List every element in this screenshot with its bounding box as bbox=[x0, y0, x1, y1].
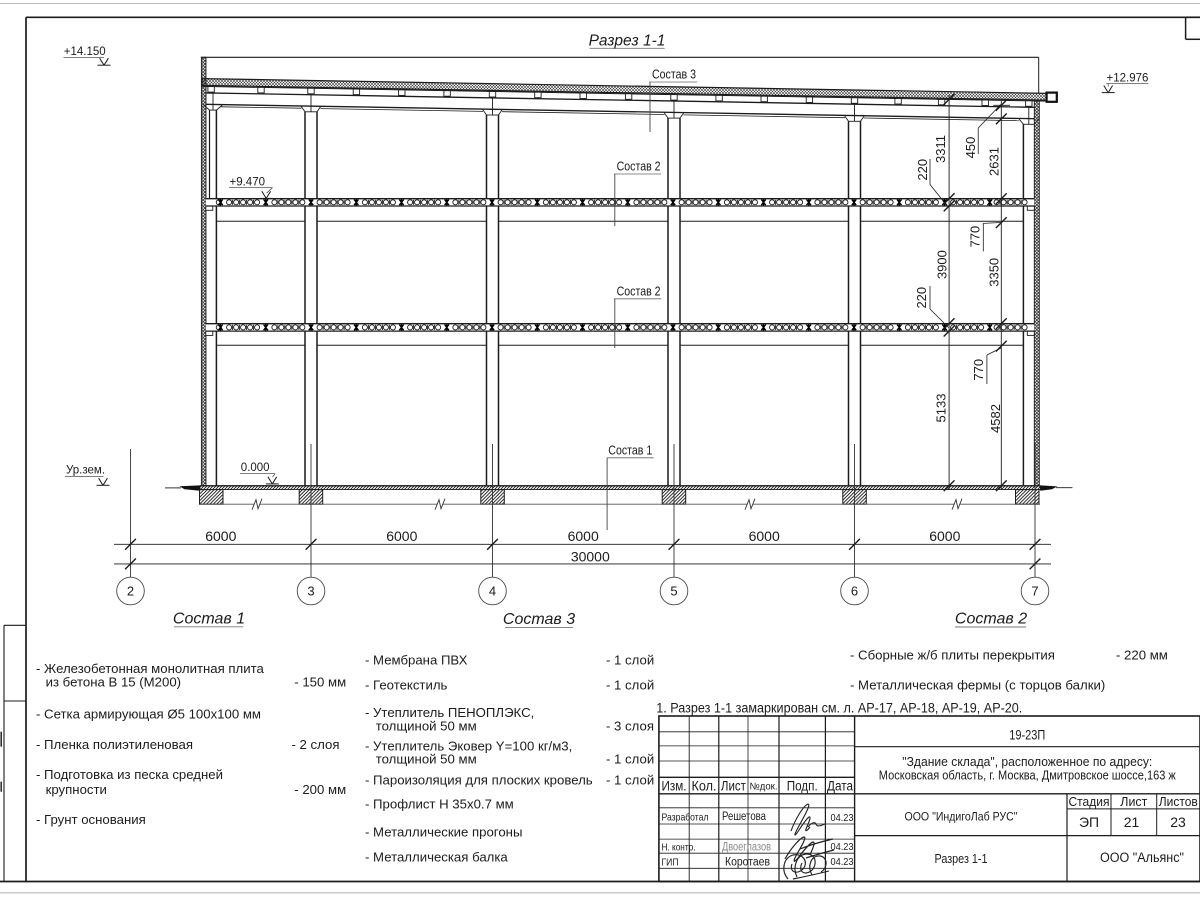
svg-text:6000: 6000 bbox=[568, 528, 599, 544]
svg-text:- Профлист Н 35х0.7 мм: - Профлист Н 35х0.7 мм bbox=[365, 797, 514, 812]
svg-text:4: 4 bbox=[489, 584, 496, 599]
svg-text:- Металлическая фермы (с торцо: - Металлическая фермы (с торцов балки) bbox=[850, 678, 1105, 693]
svg-text:Изм.: Изм. bbox=[662, 779, 687, 794]
svg-text:Состав 3: Состав 3 bbox=[652, 67, 696, 81]
svg-text:толщиной 50 мм: толщиной 50 мм bbox=[376, 752, 477, 767]
svg-text:Состав 2: Состав 2 bbox=[955, 610, 1027, 627]
svg-text:30000: 30000 bbox=[571, 548, 610, 564]
svg-text:Коротаев: Коротаев bbox=[725, 856, 770, 868]
svg-text:Стадия: Стадия bbox=[1069, 794, 1110, 809]
svg-text:19-23П: 19-23П bbox=[1009, 727, 1045, 742]
svg-text:Состав 3: Состав 3 bbox=[503, 611, 575, 628]
svg-text:крупности: крупности bbox=[46, 782, 107, 797]
svg-text:770: 770 bbox=[971, 359, 986, 381]
svg-text:5133: 5133 bbox=[933, 394, 948, 423]
svg-text:- 150 мм: - 150 мм bbox=[294, 675, 346, 690]
svg-text:+9.470: +9.470 bbox=[230, 176, 266, 188]
svg-text:3900: 3900 bbox=[934, 250, 949, 279]
svg-text:ГИП: ГИП bbox=[662, 856, 679, 868]
svg-text:450: 450 bbox=[963, 137, 978, 159]
svg-text:ООО "Альянс": ООО "Альянс" bbox=[1100, 850, 1184, 865]
svg-text:6000: 6000 bbox=[929, 528, 960, 544]
svg-text:Разрез 1-1: Разрез 1-1 bbox=[589, 33, 666, 50]
svg-text:3: 3 bbox=[307, 584, 314, 599]
svg-text:- 1 слой: - 1 слой bbox=[606, 677, 654, 692]
svg-text:6000: 6000 bbox=[386, 528, 417, 544]
svg-text:6000: 6000 bbox=[205, 528, 236, 544]
svg-text:- Геотекстиль: - Геотекстиль bbox=[365, 677, 448, 692]
svg-text:ООО "ИндигоЛаб РУС": ООО "ИндигоЛаб РУС" bbox=[905, 810, 1018, 824]
svg-text:Разрез 1-1: Разрез 1-1 bbox=[935, 852, 988, 866]
svg-text:7: 7 bbox=[1031, 584, 1038, 599]
svg-text:2631: 2631 bbox=[987, 147, 1002, 176]
svg-text:04.23: 04.23 bbox=[831, 841, 854, 853]
svg-text:4582: 4582 bbox=[988, 404, 1003, 433]
svg-text:- 2 слоя: - 2 слоя bbox=[292, 737, 340, 752]
svg-text:толщиной 50 мм: толщиной 50 мм bbox=[376, 719, 477, 734]
svg-text:Н. контр.: Н. контр. bbox=[662, 842, 696, 854]
svg-text:Разработал: Разработал bbox=[662, 812, 709, 824]
svg-text:- Сетка армирующая Ø5 100x100: - Сетка армирующая Ø5 100x100 мм bbox=[36, 707, 261, 722]
svg-text:- Сборные ж/б плиты перекрытия: - Сборные ж/б плиты перекрытия bbox=[850, 647, 1055, 662]
svg-text:770: 770 bbox=[967, 226, 982, 248]
svg-text:Дата: Дата bbox=[827, 779, 853, 794]
svg-text:Лист: Лист bbox=[1120, 794, 1147, 809]
svg-text:Листов: Листов bbox=[1159, 794, 1198, 809]
svg-text:Лист: Лист bbox=[721, 779, 746, 794]
svg-text:"Здание склада", расположенное: "Здание склада", расположенное по адресу… bbox=[902, 755, 1152, 769]
svg-text:- 3 слоя: - 3 слоя bbox=[606, 719, 654, 734]
svg-text:+14.150: +14.150 bbox=[64, 46, 106, 58]
svg-text:из бетона В 15 (М200): из бетона В 15 (М200) bbox=[46, 675, 181, 690]
svg-text:21: 21 bbox=[1124, 814, 1140, 830]
svg-text:Двоеглазов: Двоеглазов bbox=[722, 842, 771, 854]
svg-text:- Пленка полиэтиленовая: - Пленка полиэтиленовая bbox=[36, 737, 193, 752]
svg-text:№док.: №док. bbox=[750, 782, 778, 793]
svg-text:- 1 слой: - 1 слой bbox=[606, 773, 654, 788]
svg-text:- 220 мм: - 220 мм bbox=[1116, 647, 1168, 662]
svg-text:Состав 2: Состав 2 bbox=[617, 160, 661, 174]
svg-text:- Мембрана ПВХ: - Мембрана ПВХ bbox=[365, 653, 468, 668]
svg-text:- Пароизоляция для плоских кро: - Пароизоляция для плоских кровель bbox=[365, 773, 593, 788]
svg-text:2: 2 bbox=[127, 584, 134, 599]
svg-text:23: 23 bbox=[1170, 814, 1186, 830]
svg-text:0.000: 0.000 bbox=[241, 462, 270, 474]
svg-text:ЭП: ЭП bbox=[1079, 814, 1099, 830]
svg-text:Подп.: Подп. bbox=[787, 779, 818, 794]
svg-text:Московская область, г. Москва,: Московская область, г. Москва, Дмитровск… bbox=[879, 769, 1177, 783]
svg-text:Состав 2: Состав 2 bbox=[617, 285, 661, 299]
svg-text:04.23: 04.23 bbox=[831, 812, 854, 824]
svg-text:1. Разрез 1-1 замаркирован см.: 1. Разрез 1-1 замаркирован см. л. АР-17,… bbox=[656, 701, 1022, 716]
svg-text:Кол.: Кол. bbox=[692, 779, 717, 794]
svg-text:- 1 слой: - 1 слой bbox=[606, 653, 654, 668]
svg-text:- Металлическая балка: - Металлическая балка bbox=[365, 850, 508, 865]
svg-text:- 200 мм: - 200 мм bbox=[294, 782, 346, 797]
svg-text:6: 6 bbox=[851, 584, 858, 599]
svg-text:+12.976: +12.976 bbox=[1107, 72, 1149, 84]
svg-text:- Грунт основания: - Грунт основания bbox=[36, 812, 146, 827]
svg-text:3350: 3350 bbox=[986, 258, 1001, 287]
svg-text:Ур.зем.: Ур.зем. bbox=[66, 464, 105, 476]
svg-text:5: 5 bbox=[670, 584, 677, 599]
svg-text:- Подготовка из песка средней: - Подготовка из песка средней bbox=[36, 767, 223, 782]
svg-text:220: 220 bbox=[914, 287, 929, 309]
svg-text:220: 220 bbox=[915, 159, 930, 181]
svg-text:Состав 1: Состав 1 bbox=[608, 444, 652, 458]
svg-text:Решетова: Решетова bbox=[722, 811, 766, 823]
svg-text:- 1 слой: - 1 слой bbox=[606, 752, 654, 767]
svg-text:- Металлические прогоны: - Металлические прогоны bbox=[365, 825, 522, 840]
svg-text:3311: 3311 bbox=[933, 135, 948, 163]
svg-text:Состав 1: Состав 1 bbox=[173, 610, 245, 627]
svg-text:6000: 6000 bbox=[749, 528, 780, 544]
svg-text:04.23: 04.23 bbox=[831, 856, 854, 868]
